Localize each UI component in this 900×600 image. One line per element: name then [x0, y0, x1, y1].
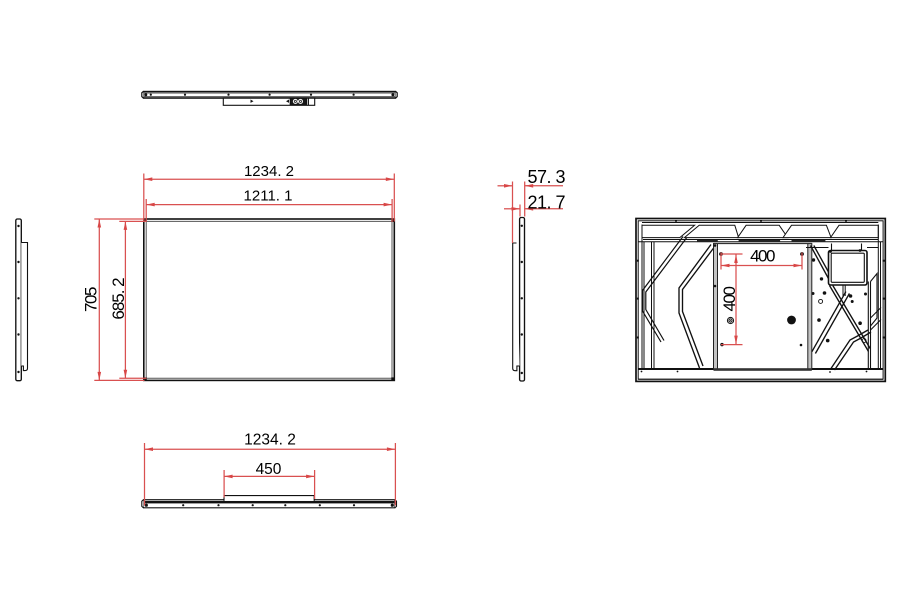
svg-text:1211. 1: 1211. 1 [244, 188, 293, 205]
svg-text:400: 400 [720, 287, 739, 312]
svg-text:1234. 2: 1234. 2 [244, 163, 294, 180]
svg-text:1234. 2: 1234. 2 [244, 432, 296, 449]
svg-text:57. 3: 57. 3 [528, 167, 566, 187]
svg-text:400: 400 [750, 246, 775, 265]
svg-text:450: 450 [256, 461, 282, 478]
svg-text:685. 2: 685. 2 [109, 278, 128, 320]
svg-text:705: 705 [81, 287, 100, 312]
svg-text:21. 7: 21. 7 [528, 193, 566, 213]
